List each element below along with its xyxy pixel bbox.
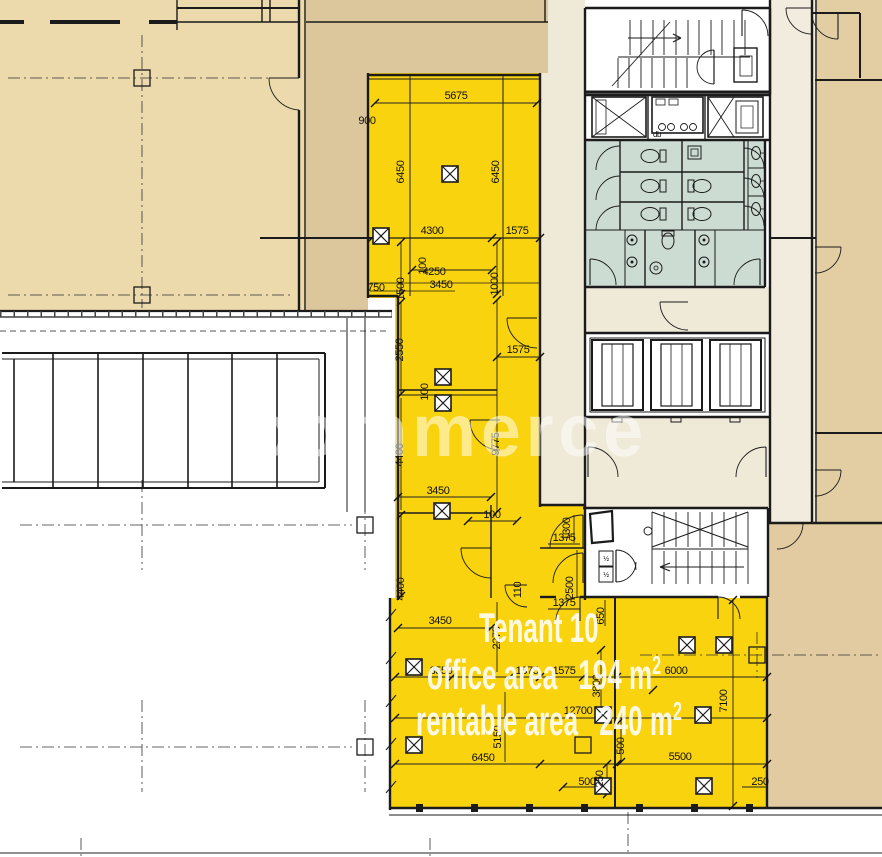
elevator-bank [590,338,765,422]
dimension-label: 4400 [394,443,406,466]
dimension-label: 3450 [430,279,453,291]
region-tan-right-rooms [815,0,882,523]
dimension-label: 1575 [507,344,530,356]
dimension-label: 3450 [429,615,452,627]
dimension-label: 500 [578,776,595,788]
dimension-label: 3800 [591,674,603,697]
dimension-label: 2550 [394,338,406,361]
dimension-label: 250 [751,776,768,788]
region-corridor-right [770,0,815,523]
dimension-label: 250 [594,770,606,787]
dimension-label: 1375 [516,665,539,677]
region-wc-block [585,140,765,287]
region-tan-above-tenant [306,0,548,73]
dimension-label: 6450 [472,752,495,764]
region-tan-bottom-right [767,523,882,808]
dimension-label: 4400 [395,577,407,600]
dimension-label: 500 [615,737,627,754]
dimension-label: 2500 [564,576,576,599]
region-tenant-upper [368,73,540,298]
dimension-label: 900 [358,115,375,127]
dimension-label: 5500 [669,751,692,763]
dimension-label: 6450 [490,160,502,183]
dimension-label: 650 [595,607,607,624]
dimension-label: 1375 [553,597,576,609]
dimension-label: 110 [512,582,524,599]
dimension-label: 6000 [665,665,688,677]
dimension-label: 5675 [445,90,468,102]
dimension-label: 7100 [718,689,730,712]
dimension-label: 100 [419,383,431,400]
dimension-label: 3550 [430,665,453,677]
dimension-label: 1575 [553,665,576,677]
dimension-label: ½ [603,555,609,563]
dimension-label: 2275 [491,626,503,649]
region-tan-top-left [0,0,306,312]
dimension-label: 100 [483,509,500,521]
region-lobby-lower [585,417,770,508]
dimension-label: 9775 [490,432,502,455]
dimension-label: 1375 [553,532,576,544]
dimension-label: 1000 [489,272,501,295]
region-cream-top [548,0,585,73]
region-tan-strip [306,73,368,312]
dimension-label: 4250 [423,266,446,278]
region-lobby-upper [585,287,770,333]
dimension-label: 3450 [427,485,450,497]
region-cream-left-of-core [540,73,585,505]
dimension-label: 5150 [492,725,504,748]
region-tenant-corridor [395,298,540,598]
dimension-label: 1575 [506,225,529,237]
floorplan-canvas: 5675900645064504300157510042503450750150… [0,0,882,857]
dimension-label: 750 [367,282,384,294]
dimension-label: 4300 [421,225,444,237]
dimension-label: 12700 [564,705,593,717]
dimension-label: 1500 [395,277,407,300]
dimension-label: 6450 [395,160,407,183]
dimension-label: db [653,130,662,139]
plan-regions [0,0,882,857]
dimension-label: ½ [603,571,609,579]
floorplan-drawing: 5675900645064504300157510042503450750150… [0,0,882,857]
